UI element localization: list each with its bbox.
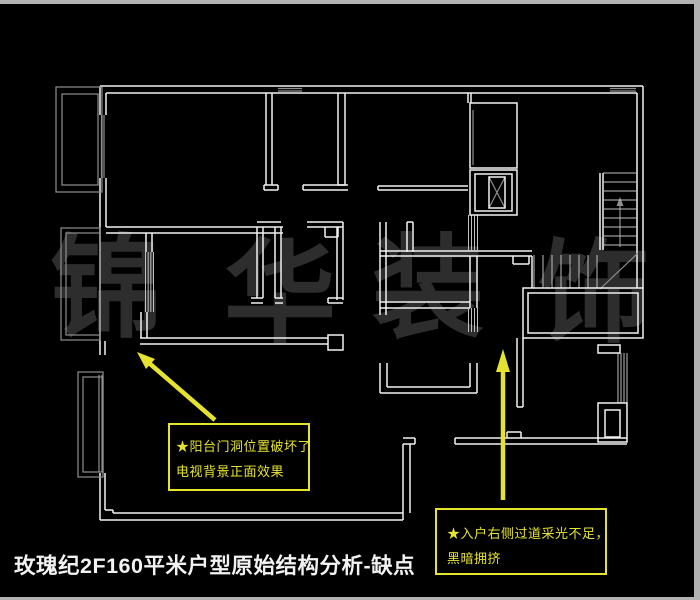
annotation-text: ★阳台门洞位置破坏了	[176, 434, 308, 459]
annotation-balcony-door: ★阳台门洞位置破坏了 电视背景正面效果	[168, 423, 310, 491]
balconies-windows-stairs	[56, 87, 638, 477]
elevator-and-rooms	[328, 103, 643, 442]
annotation-entry-corridor: ★入户右侧过道采光不足， 黑暗拥挤	[435, 508, 607, 575]
top-border	[0, 0, 700, 4]
page-title: 玫瑰纪2F160平米户型原始结构分析-缺点	[14, 549, 415, 580]
annotation-text: 黑暗拥挤	[447, 546, 605, 571]
right-border	[694, 0, 700, 600]
annotation-text: ★入户右侧过道采光不足，	[447, 521, 605, 546]
slide-canvas: 锦 华 装 饰 ★阳台门洞位置破坏了 电视背景正面效果 ★入户右侧过道采光不足，…	[0, 0, 700, 600]
annotation-text: 电视背景正面效果	[176, 459, 308, 484]
